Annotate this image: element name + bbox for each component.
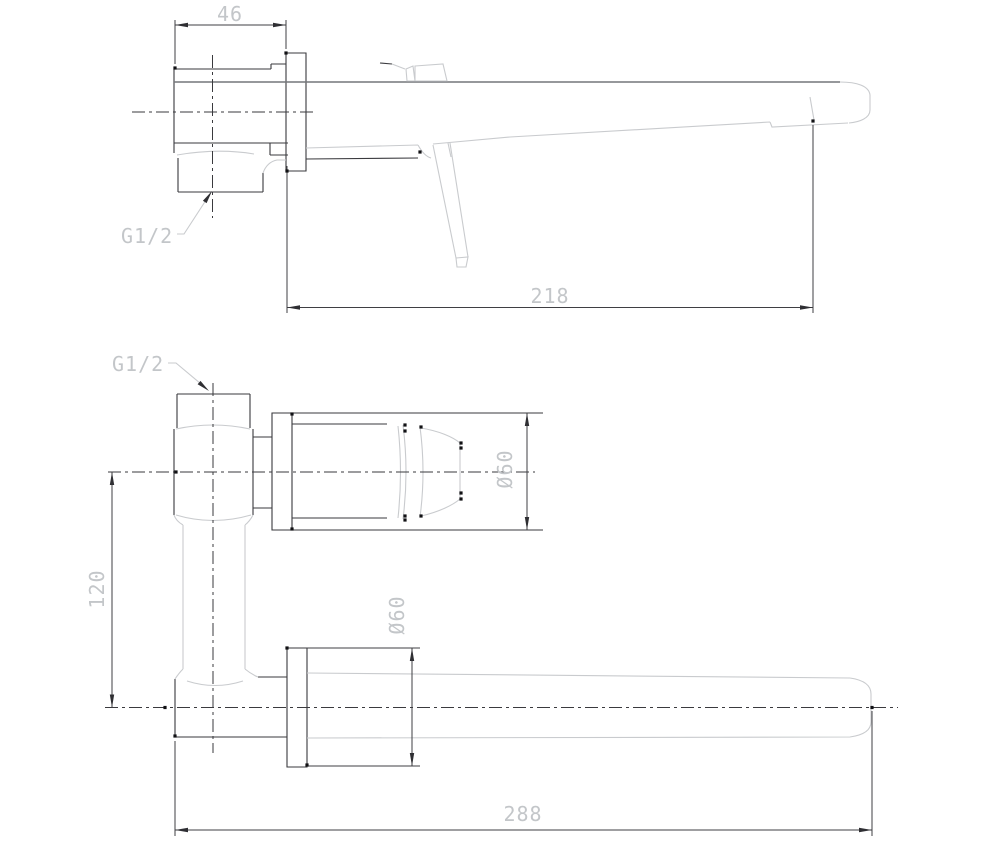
snap-dot (459, 491, 462, 494)
snap-dot (418, 150, 421, 153)
dimension-d60-spout: Ø60 (385, 595, 414, 766)
bottom-view: 120 Ø60 Ø60 288 G1/2 (85, 352, 898, 836)
thread-label: G1/2 (112, 352, 164, 376)
light-contours-side (177, 64, 870, 173)
dimension-46-lines (175, 20, 286, 64)
spout-plan-outline (307, 673, 871, 738)
dim-value-d60-spout: Ø60 (385, 595, 409, 634)
snap-dot (459, 441, 462, 444)
snap-dot (403, 514, 406, 517)
snap-dot (403, 429, 406, 432)
snap-dot (459, 497, 462, 500)
snap-dot (459, 446, 462, 449)
dim-value-120: 120 (85, 569, 109, 608)
snap-dot (419, 425, 422, 428)
arrow-down-icon (110, 695, 114, 708)
arrow-up-icon (410, 648, 414, 661)
arrow-left-icon (175, 23, 188, 27)
arrow-right-icon (859, 828, 872, 832)
thread-callout-top-view: G1/2 (121, 191, 212, 248)
arrow-left-icon (287, 305, 300, 309)
snap-dot (173, 734, 176, 737)
lever-handle-side (433, 143, 468, 267)
snap-dot (419, 514, 422, 517)
arrow-down-icon (410, 753, 414, 766)
snap-dot (284, 51, 287, 54)
dim-value-d60-handle: Ø60 (493, 449, 517, 488)
arrow-left-icon (175, 828, 188, 832)
snap-dot (285, 646, 288, 649)
snap-dot (403, 423, 406, 426)
drawing-canvas: 46 218 G1/2 (0, 0, 1000, 843)
arrow-up-icon (110, 472, 114, 485)
top-view: 46 218 G1/2 (121, 2, 870, 313)
snap-dot (403, 518, 406, 521)
thread-callout-bottom-view: G1/2 (112, 352, 209, 391)
arrow-down-icon (525, 517, 529, 530)
dimension-46: 46 (175, 2, 286, 64)
thread-label: G1/2 (121, 224, 173, 248)
dimension-120: 120 (85, 472, 114, 708)
dim-value-288: 288 (503, 802, 542, 826)
light-contours-plan (174, 425, 258, 686)
snap-dot (285, 169, 288, 172)
snap-dots-bottom-view (163, 412, 873, 766)
snap-dot (173, 66, 176, 69)
leader-arrow-icon (203, 191, 212, 203)
arrow-right-icon (273, 23, 286, 27)
dimension-288: 288 (175, 711, 872, 836)
t-body-outline (174, 394, 287, 737)
dim-value-46: 46 (217, 2, 243, 26)
snap-dot (290, 527, 293, 530)
snap-dot (163, 706, 166, 709)
arrow-up-icon (525, 413, 529, 426)
arrow-right-icon (800, 305, 813, 309)
technical-drawing: 46 218 G1/2 (0, 0, 1000, 843)
leader-arrow-icon (198, 381, 209, 391)
dim-value-218: 218 (530, 284, 569, 308)
snap-dot (305, 763, 308, 766)
snap-dot (290, 412, 293, 415)
snap-dot (174, 470, 177, 473)
snap-dot (870, 706, 873, 709)
snap-dot (811, 119, 814, 122)
dimension-218: 218 (287, 125, 813, 313)
